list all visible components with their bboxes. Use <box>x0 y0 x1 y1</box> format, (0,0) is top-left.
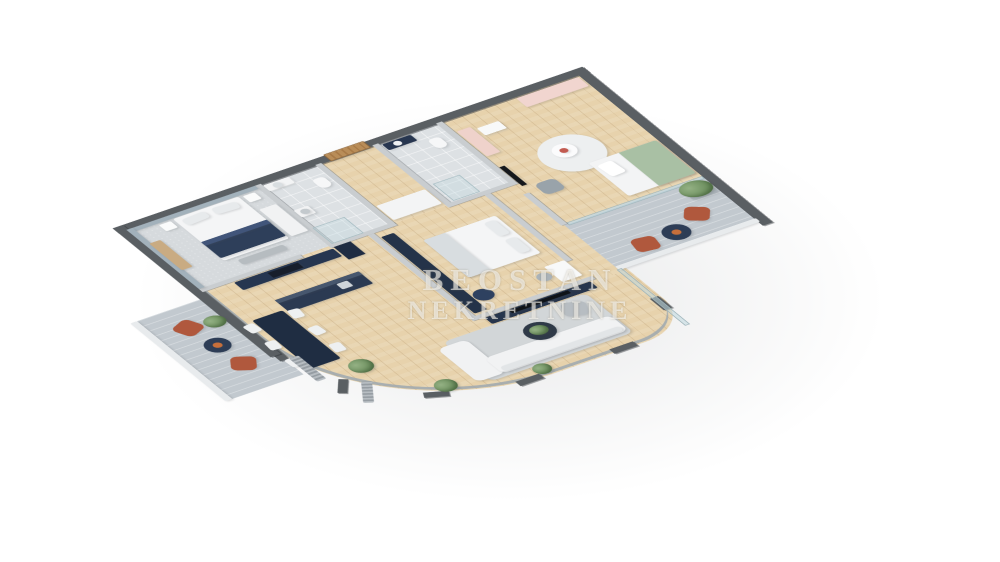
isometric-scene <box>0 0 1000 562</box>
terrace-chair-1 <box>683 207 710 221</box>
radiator-2 <box>361 381 374 402</box>
apartment-floor-plan <box>127 74 874 470</box>
window-pier-2 <box>337 379 348 393</box>
terrace-chair-4 <box>230 356 257 370</box>
floor-plan-render: BEOSTAN NEKRETNINE <box>0 0 1000 562</box>
